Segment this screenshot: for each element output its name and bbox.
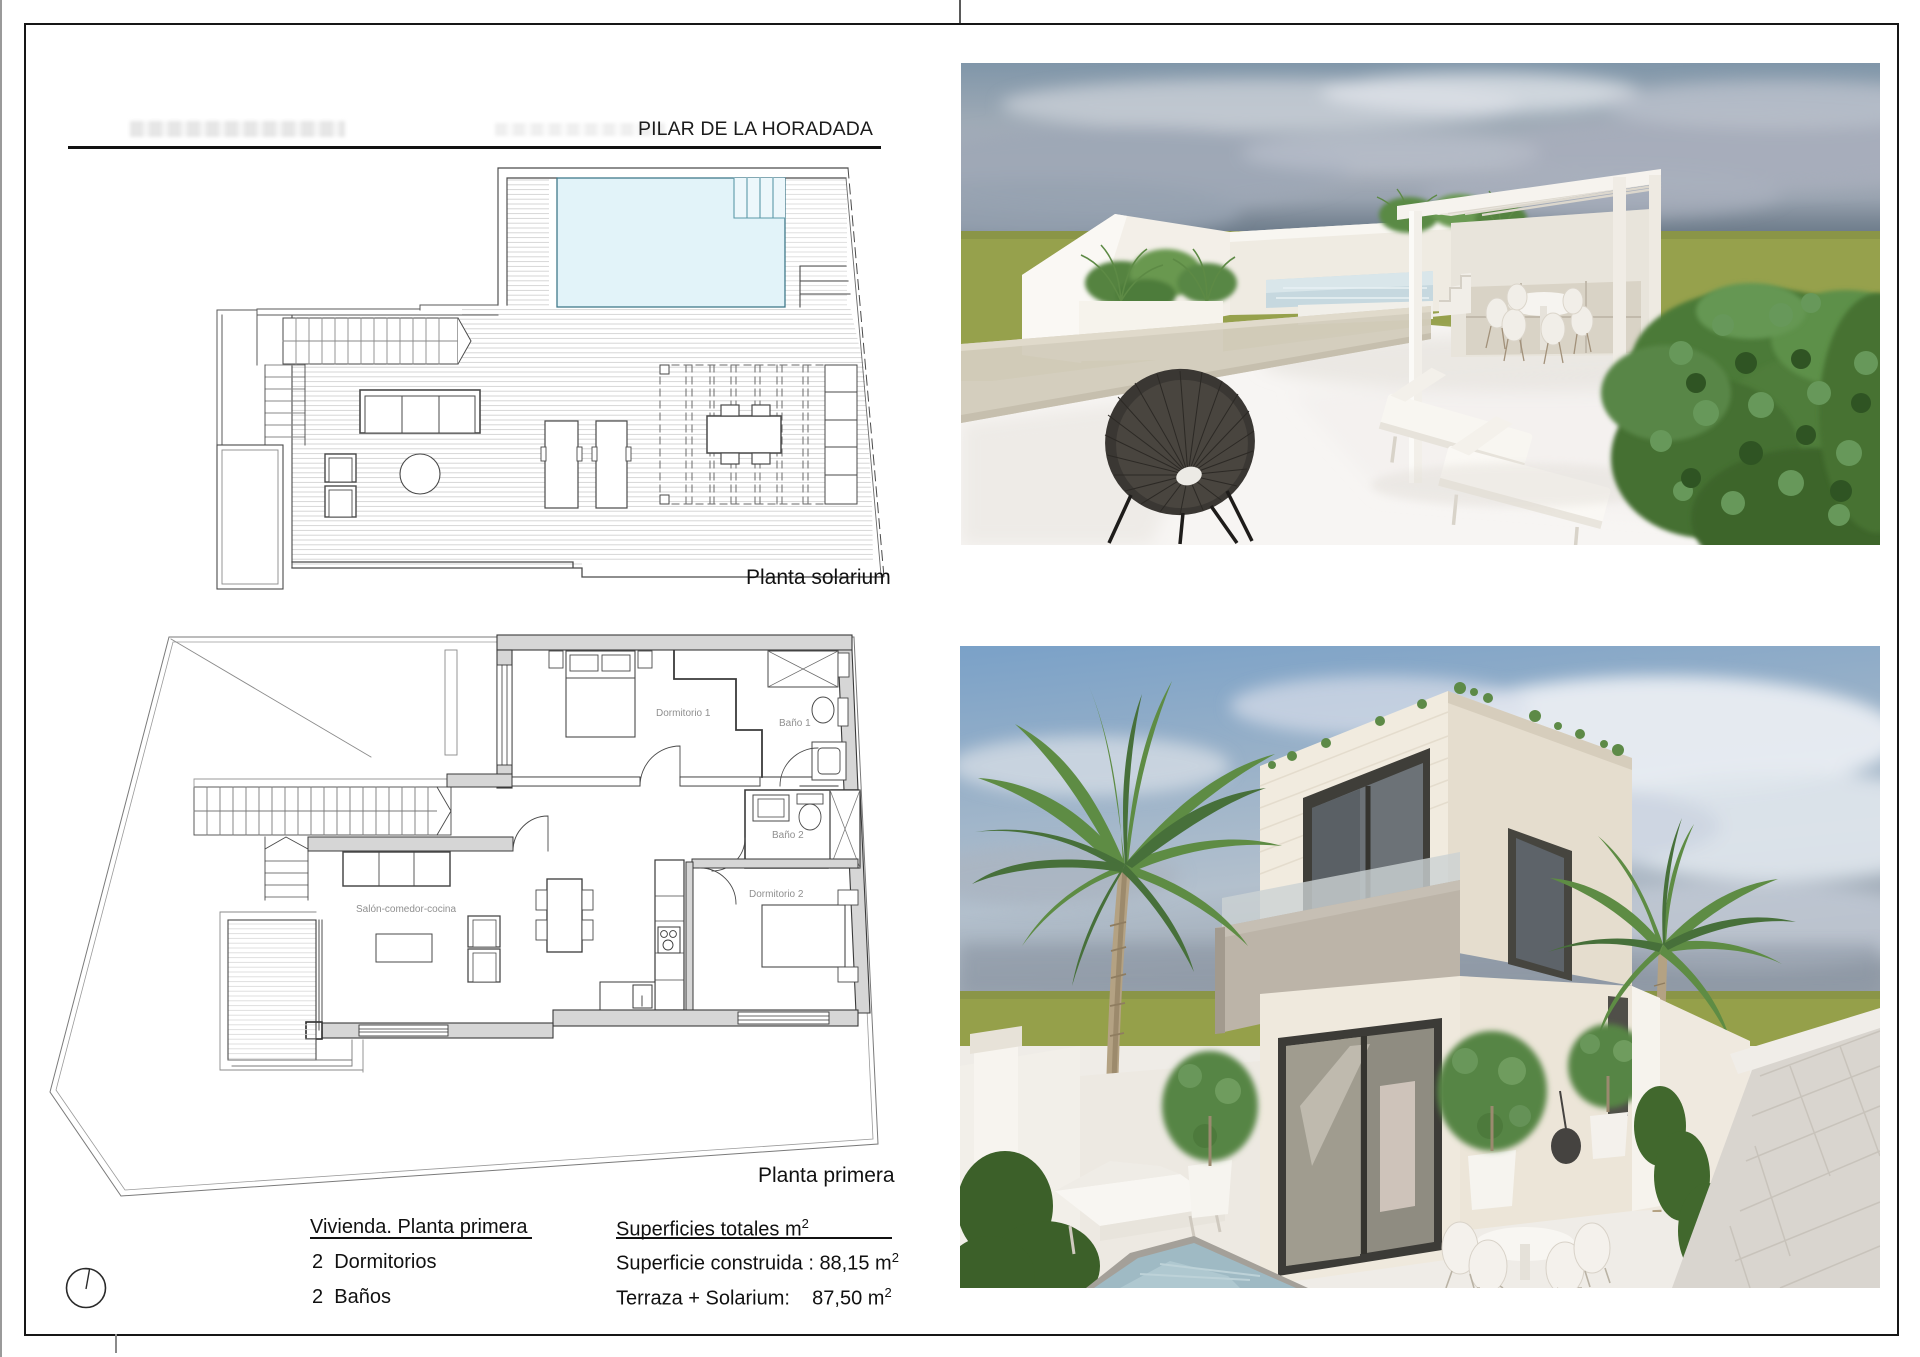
svg-text:Baño 2: Baño 2 xyxy=(772,830,804,841)
svg-text:Dormitorio 2: Dormitorio 2 xyxy=(749,889,804,900)
svg-text:Dormitorio 1: Dormitorio 1 xyxy=(656,708,711,719)
svg-text:Baño 1: Baño 1 xyxy=(779,718,811,729)
svg-text:Salón-comedor-cocina: Salón-comedor-cocina xyxy=(356,904,456,915)
